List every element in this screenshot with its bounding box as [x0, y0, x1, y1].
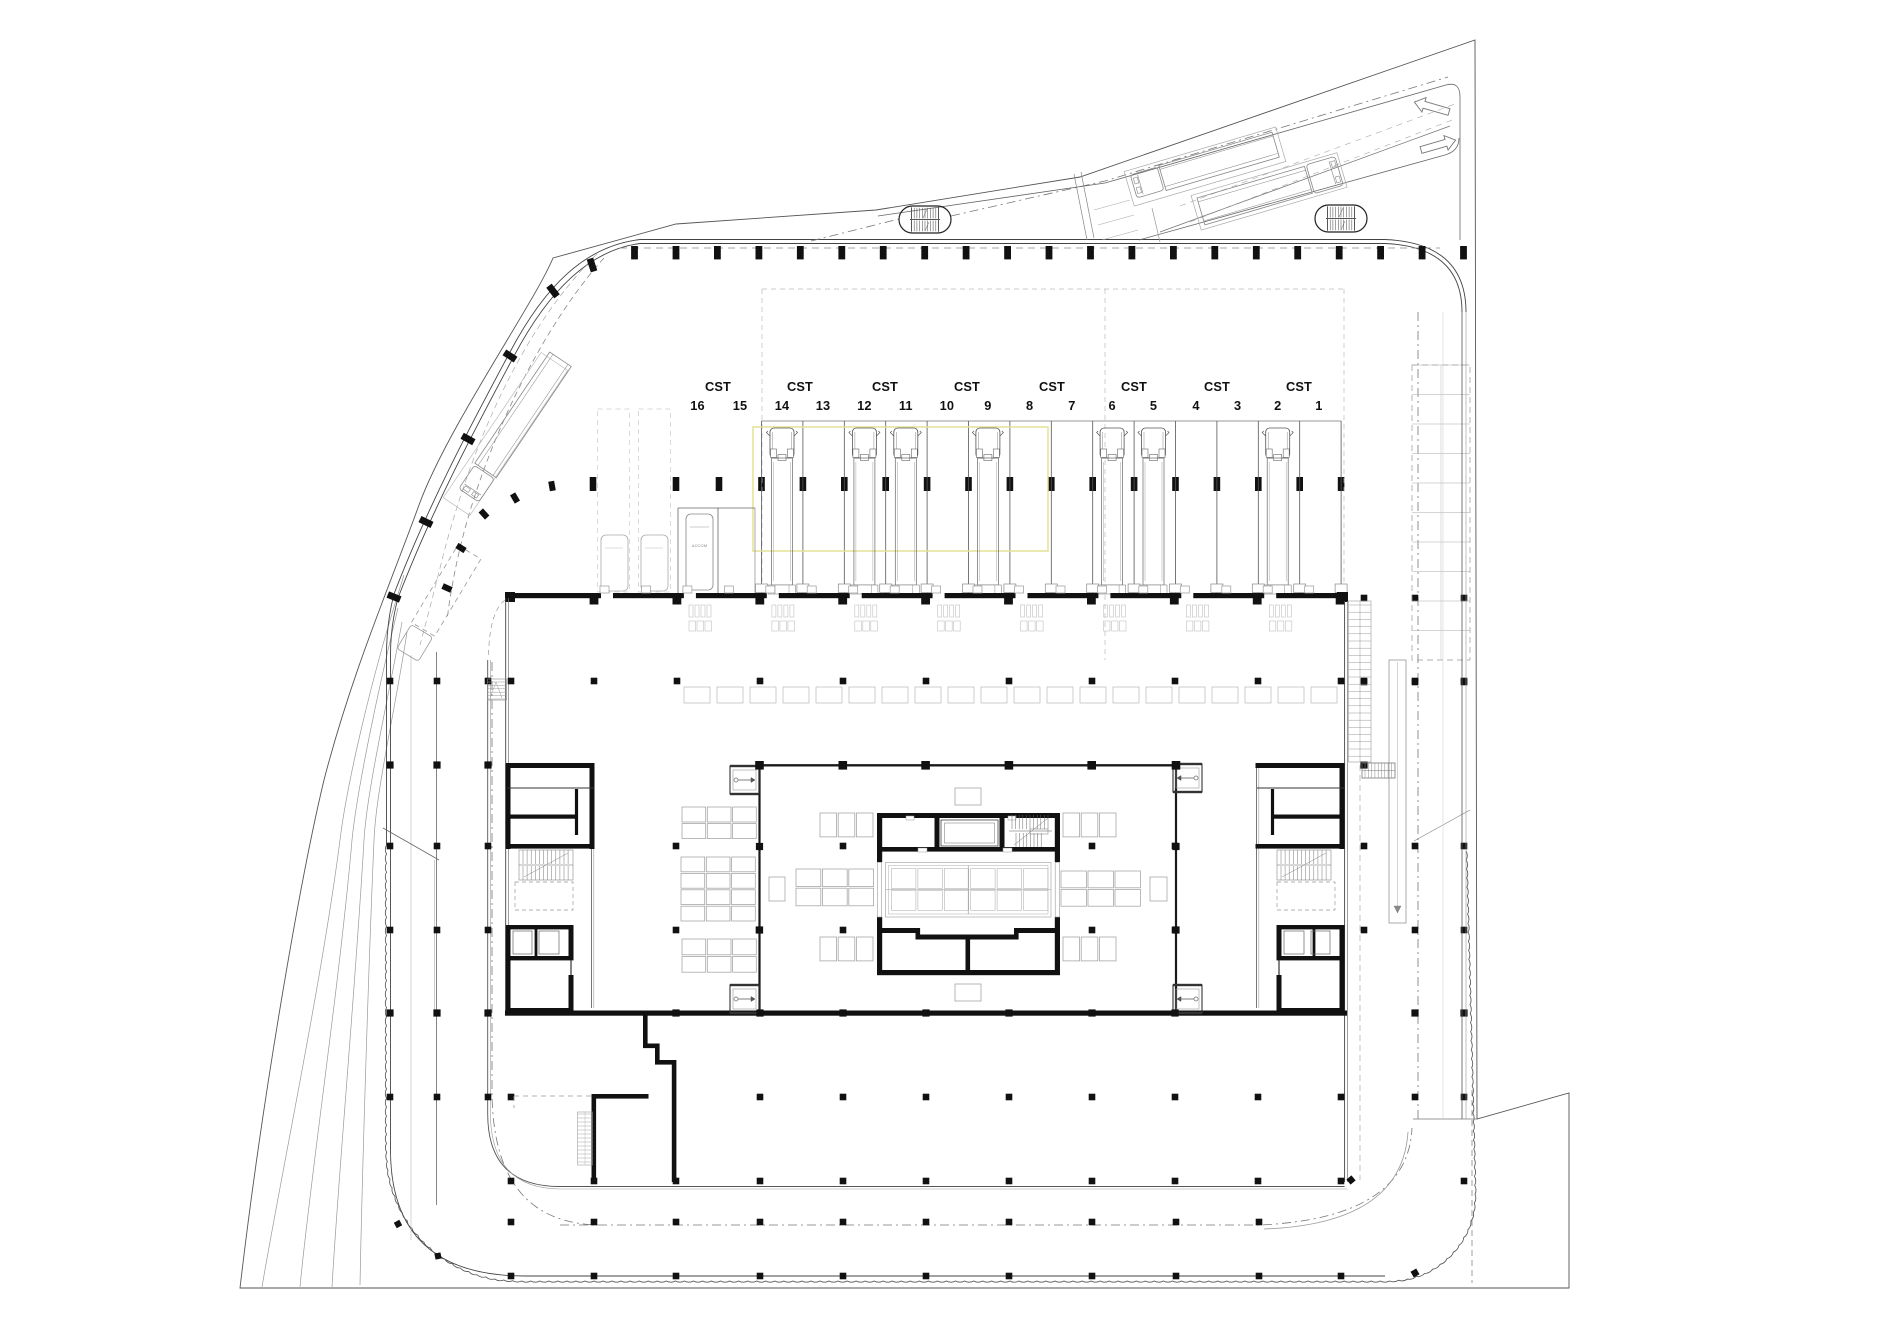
- svg-text:CST: CST: [787, 379, 813, 394]
- svg-text:6: 6: [1108, 398, 1115, 413]
- svg-text:13: 13: [816, 398, 830, 413]
- svg-text:CST: CST: [872, 379, 898, 394]
- svg-text:8: 8: [1026, 398, 1033, 413]
- svg-text:ACCOM: ACCOM: [692, 543, 707, 548]
- svg-text:1: 1: [1315, 398, 1322, 413]
- svg-text:4: 4: [1192, 398, 1200, 413]
- svg-text:CST: CST: [954, 379, 980, 394]
- svg-text:7: 7: [1068, 398, 1075, 413]
- svg-text:12: 12: [857, 398, 871, 413]
- svg-text:CST: CST: [1286, 379, 1312, 394]
- svg-text:3: 3: [1234, 398, 1241, 413]
- svg-text:14: 14: [775, 398, 790, 413]
- svg-text:11: 11: [899, 398, 913, 413]
- svg-text:CST: CST: [1039, 379, 1065, 394]
- svg-text:CST: CST: [1204, 379, 1230, 394]
- svg-text:CST: CST: [705, 379, 731, 394]
- svg-text:5: 5: [1150, 398, 1157, 413]
- svg-text:15: 15: [733, 398, 747, 413]
- svg-text:CST: CST: [1121, 379, 1147, 394]
- svg-text:2: 2: [1274, 398, 1281, 413]
- svg-text:16: 16: [690, 398, 704, 413]
- svg-text:10: 10: [940, 398, 954, 413]
- svg-text:9: 9: [984, 398, 991, 413]
